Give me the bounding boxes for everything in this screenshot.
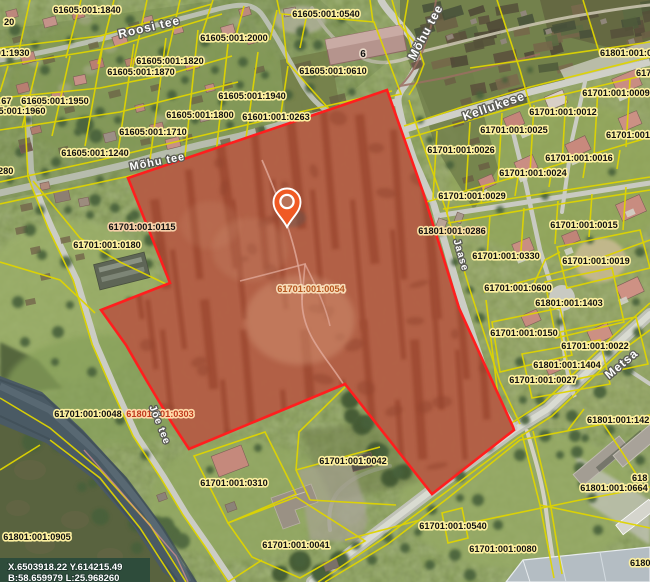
svg-text:61701:001:0029: 61701:001:0029: [438, 191, 505, 201]
svg-text:61605:001:1800: 61605:001:1800: [166, 110, 233, 120]
svg-text:61701:001:0330: 61701:001:0330: [472, 251, 539, 261]
svg-text:61801:001:0286: 61801:001:0286: [418, 226, 485, 236]
svg-text:61701:001:0041: 61701:001:0041: [262, 540, 329, 550]
svg-text:61701:001:0019: 61701:001:0019: [562, 256, 629, 266]
svg-text:61605:001:0540: 61605:001:0540: [292, 9, 359, 19]
svg-text:61701:001:0048: 61701:001:0048: [54, 409, 121, 419]
svg-text:61601:001:0263: 61601:001:0263: [242, 112, 309, 122]
svg-text:61701:001:0024: 61701:001:0024: [499, 168, 567, 178]
svg-text:61801:001:1404: 61801:001:1404: [533, 360, 601, 370]
svg-text:61605:001:2000: 61605:001:2000: [200, 33, 267, 43]
svg-text:61701:001:0054: 61701:001:0054: [277, 284, 345, 294]
svg-text:61605:001:0610: 61605:001:0610: [299, 66, 366, 76]
svg-text:61605:001:1840: 61605:001:1840: [53, 5, 120, 15]
svg-text:61701:001:0025: 61701:001:0025: [480, 125, 547, 135]
svg-text:61701:001:0042: 61701:001:0042: [319, 456, 386, 466]
svg-text:61801:001:0905: 61801:001:0905: [3, 532, 70, 542]
svg-text:20: 20: [4, 17, 14, 27]
svg-text:B:58.659979 L:25.968260: B:58.659979 L:25.968260: [8, 573, 119, 582]
svg-text:61701:001:0540: 61701:001:0540: [419, 521, 486, 531]
svg-text:61801:001:1403: 61801:001:1403: [535, 298, 602, 308]
svg-text:X.6503918.22 Y.614215.49: X.6503918.22 Y.614215.49: [8, 562, 122, 573]
svg-text:61605:001:1870: 61605:001:1870: [107, 67, 174, 77]
svg-text:61701:001:0600: 61701:001:0600: [484, 283, 551, 293]
svg-text:61701:001:0180: 61701:001:0180: [73, 240, 140, 250]
svg-text:61701:001:0310: 61701:001:0310: [200, 478, 267, 488]
svg-text:61701:001:0012: 61701:001:0012: [529, 107, 596, 117]
svg-text:61701:001:0080: 61701:001:0080: [469, 544, 536, 554]
svg-text:61605:001:1240: 61605:001:1240: [61, 148, 128, 158]
svg-text:61605:001:1940: 61605:001:1940: [218, 91, 285, 101]
svg-text:61801:001:142: 61801:001:142: [587, 415, 649, 425]
svg-text:61605:001:1960: 61605:001:1960: [0, 106, 45, 116]
svg-text:61701:001:0150: 61701:001:0150: [490, 328, 557, 338]
svg-text:61701:001:0009: 61701:001:0009: [582, 88, 649, 98]
svg-text:61701:001:0016: 61701:001:0016: [545, 153, 612, 163]
svg-text:61801:001:00: 61801:001:00: [600, 48, 650, 58]
svg-text:6170: 6170: [636, 68, 650, 78]
svg-text:61701:001:0026: 61701:001:0026: [427, 145, 494, 155]
svg-text:61701:001:0022: 61701:001:0022: [561, 341, 628, 351]
svg-text:6: 6: [360, 49, 366, 60]
svg-text:61701:001:: 61701:001:: [606, 130, 650, 140]
svg-text:61801:001:0664: 61801:001:0664: [580, 483, 648, 493]
svg-text:618: 618: [632, 473, 647, 483]
svg-text:280: 280: [0, 166, 13, 176]
svg-text:…67: …67: [0, 96, 11, 106]
svg-text:6180: 6180: [630, 558, 650, 568]
svg-text:61605:001:1950: 61605:001:1950: [21, 96, 88, 106]
svg-text:61701:001:0015: 61701:001:0015: [550, 220, 617, 230]
svg-text:61701:001:0115: 61701:001:0115: [109, 222, 176, 232]
svg-text:61605:001:1930: 61605:001:1930: [0, 48, 29, 58]
svg-text:61605:001:1710: 61605:001:1710: [119, 127, 186, 137]
svg-text:61605:001:1820: 61605:001:1820: [136, 56, 203, 66]
svg-text:61701:001:0027: 61701:001:0027: [509, 375, 576, 385]
